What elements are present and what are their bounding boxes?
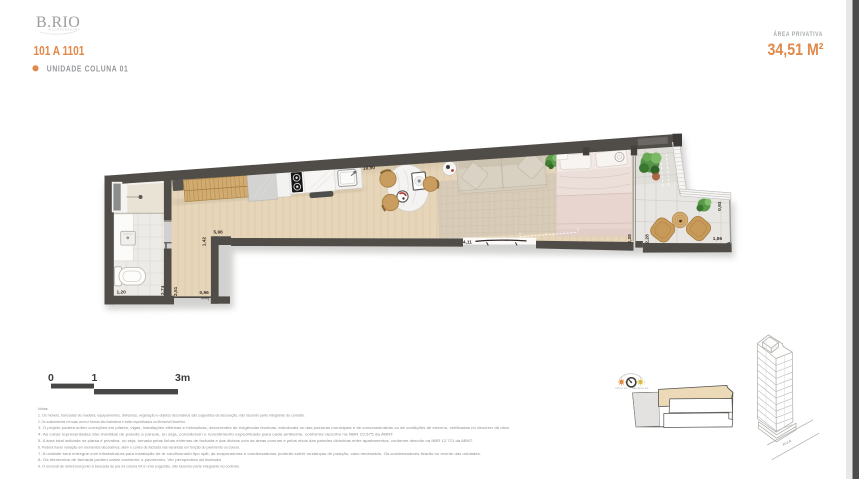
svg-text:34,51 M²: 34,51 M²: [768, 41, 824, 59]
svg-text:PÔR DO SOL: PÔR DO SOL: [615, 387, 628, 390]
svg-text:NASCER DO SOL: NASCER DO SOL: [632, 387, 649, 390]
svg-text:1. Os móveis, bancadas de made: 1. Os móveis, bancadas de madeira, equip…: [38, 413, 305, 417]
svg-text:Notas:: Notas:: [38, 407, 48, 411]
svg-text:1,20: 1,20: [117, 289, 127, 295]
svg-text:3m: 3m: [175, 372, 190, 384]
svg-text:0,93: 0,93: [717, 201, 723, 211]
svg-text:101 A 1101: 101 A 1101: [34, 45, 85, 58]
svg-text:4,11: 4,11: [463, 239, 472, 245]
svg-text:10,90: 10,90: [363, 165, 376, 172]
svg-text:1,86: 1,86: [713, 236, 723, 242]
svg-text:2,28: 2,28: [627, 234, 633, 244]
svg-text:2,74: 2,74: [160, 285, 166, 295]
svg-text:6. Poderá haver variação em el: 6. Poderá haver variação em elementos de…: [38, 445, 240, 449]
svg-text:9. O enxoval de referência jun: 9. O enxoval de referência junto à banca…: [38, 465, 240, 469]
svg-text:4. As cotas representadas são: 4. As cotas representadas são medidas de…: [38, 433, 394, 437]
svg-text:UNIDADE COLUNA 01: UNIDADE COLUNA 01: [47, 64, 129, 74]
svg-text:3. O projeto poderá sofrer cor: 3. O projeto poderá sofrer correções em …: [38, 426, 510, 430]
svg-text:7. A unidade será entregue com: 7. A unidade será entregue com infraestr…: [38, 452, 481, 456]
svg-text:2,28: 2,28: [644, 234, 650, 244]
svg-text:0,96: 0,96: [200, 290, 210, 296]
svg-text:INCORPORADORA: INCORPORADORA: [48, 28, 80, 32]
svg-text:8. Os elementos de fachada pod: 8. Os elementos de fachada podem variar …: [38, 458, 222, 462]
svg-text:ÁREA PRIVATIVA: ÁREA PRIVATIVA: [773, 30, 823, 38]
svg-text:5. A área total indicada na pl: 5. A área total indicada na planta é pri…: [38, 439, 473, 443]
svg-text:2,51: 2,51: [173, 286, 179, 296]
svg-text:1,42: 1,42: [202, 237, 208, 247]
svg-text:1: 1: [92, 372, 98, 384]
svg-text:RUA: RUA: [782, 438, 793, 447]
svg-text:0: 0: [48, 372, 54, 384]
svg-text:2. Os acabamentos em suas core: 2. Os acabamentos em suas cores e formas…: [38, 420, 186, 424]
svg-text:5,96: 5,96: [214, 230, 224, 236]
